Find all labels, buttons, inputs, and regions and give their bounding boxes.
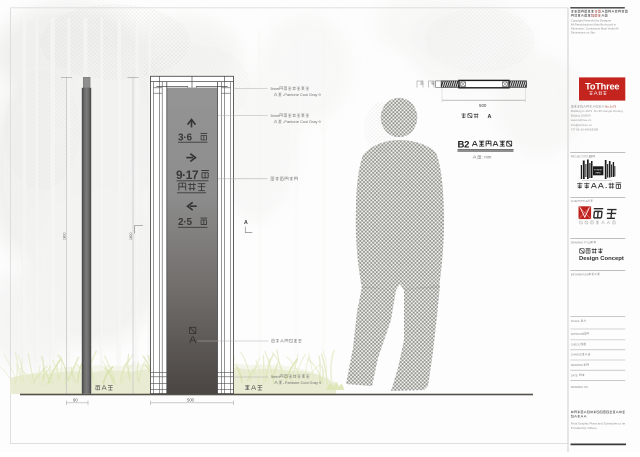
svg-text:DRAWING: DRAWING — [571, 363, 583, 367]
svg-text:: mm: : mm — [482, 155, 492, 160]
svg-text:Pantone Cool Gray 9: Pantone Cool Gray 9 — [284, 119, 320, 124]
svg-text:DRAWING TITLE: DRAWING TITLE — [571, 240, 591, 244]
svg-text:CHECK: CHECK — [571, 342, 580, 346]
svg-text:CLIENT/TITLE: CLIENT/TITLE — [571, 199, 588, 203]
svg-text:B2: B2 — [458, 139, 470, 150]
svg-text:FOREST: FOREST — [594, 170, 603, 172]
svg-text:No.1x73: No.1x73 — [605, 105, 617, 109]
svg-text:9·17: 9·17 — [176, 168, 199, 182]
svg-text:APPROVE: APPROVE — [571, 332, 584, 336]
svg-text:50: 50 — [420, 81, 424, 85]
svg-text:5mm: 5mm — [271, 113, 280, 118]
svg-text:1800: 1800 — [62, 232, 66, 240]
svg-text:500: 500 — [479, 103, 487, 108]
svg-text:2·5: 2·5 — [178, 217, 192, 228]
svg-text:A: A — [488, 114, 492, 120]
svg-text:Building C-1973 ,No.39 Hongtu: Building C-1973 ,No.39 Hongtu Hutong , — [571, 109, 625, 113]
svg-text:Pantone Cool Gray 9: Pantone Cool Gray 9 — [285, 380, 321, 385]
svg-text:A: A — [244, 220, 248, 226]
svg-text:CHARGE: CHARGE — [571, 353, 582, 357]
svg-text:www.tothree.cn: www.tothree.cn — [571, 118, 592, 122]
svg-text:Design Concept: Design Concept — [579, 256, 624, 262]
svg-text:Beijing 100009: Beijing 100009 — [571, 114, 591, 118]
svg-text:5mm: 5mm — [271, 86, 280, 91]
svg-text:PROJECT/TITLE: PROJECT/TITLE — [571, 155, 591, 159]
svg-text:Dimensions on Site.: Dimensions on Site. — [571, 31, 596, 35]
svg-text:info@tothree.cn: info@tothree.cn — [571, 123, 593, 127]
svg-text:PARK: PARK — [595, 171, 601, 174]
svg-text:ToThree: ToThree — [585, 82, 619, 92]
svg-text:Provided by Others,: Provided by Others, — [571, 426, 598, 430]
svg-text:DATE: DATE — [571, 373, 578, 377]
svg-text:SCALE: SCALE — [571, 319, 580, 323]
svg-text:T/F 86-10-84018098: T/F 86-10-84018098 — [571, 127, 599, 131]
svg-text:1800: 1800 — [129, 232, 133, 240]
svg-text:40: 40 — [431, 81, 435, 85]
svg-text:INFORMATION: INFORMATION — [571, 272, 589, 276]
svg-text:5mm: 5mm — [271, 374, 280, 379]
svg-text:DRAWING NO.: DRAWING NO. — [571, 385, 589, 389]
svg-text:90: 90 — [73, 397, 78, 402]
svg-text:500: 500 — [187, 397, 195, 402]
svg-text:Final Graphic Plans and Schedu: Final Graphic Plans and Schedules to be — [571, 422, 626, 426]
svg-text:Pantone Cool Gray 9: Pantone Cool Gray 9 — [284, 92, 320, 97]
